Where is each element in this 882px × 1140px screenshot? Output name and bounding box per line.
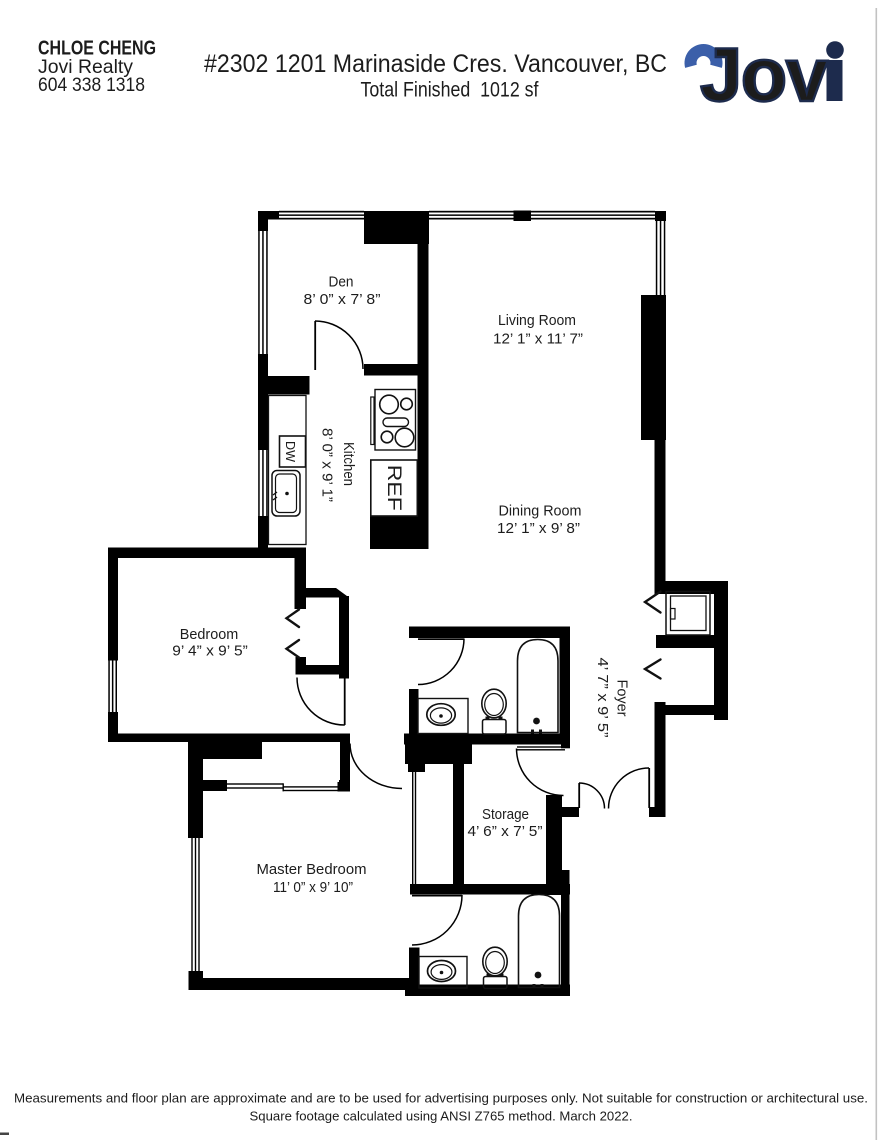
svg-text:Dining Room: Dining Room [499, 503, 582, 520]
svg-text:Bedroom: Bedroom [180, 626, 239, 643]
svg-text:Living Room: Living Room [498, 312, 576, 329]
svg-text:Measurements and floor plan ar: Measurements and floor plan are approxim… [14, 1091, 868, 1106]
svg-text:8’ 0” x 7’ 8”: 8’ 0” x 7’ 8” [304, 291, 381, 308]
svg-text:Kitchen: Kitchen [340, 442, 357, 486]
svg-text:11’ 0” x 9’ 10”: 11’ 0” x 9’ 10” [273, 879, 353, 896]
svg-text:8’ 0” x 9’ 1”: 8’ 0” x 9’ 1” [319, 428, 336, 502]
svg-text:Master Bedroom: Master Bedroom [257, 861, 367, 878]
svg-text:4’ 7” x 9’ 5”: 4’ 7” x 9’ 5” [594, 658, 611, 738]
svg-text:DW: DW [283, 441, 297, 462]
svg-text:604 338 1318: 604 338 1318 [38, 75, 145, 96]
svg-text:Square footage calculated usin: Square footage calculated using ANSI Z76… [250, 1109, 633, 1124]
svg-text:9’ 4” x 9’ 5”: 9’ 4” x 9’ 5” [172, 643, 248, 660]
svg-text:Total Finished 1012 sf: Total Finished 1012 sf [361, 79, 539, 102]
svg-text:Den: Den [329, 274, 354, 291]
svg-text:12’ 1” x 11’ 7”: 12’ 1” x 11’ 7” [493, 331, 583, 348]
svg-text:#2302 1201 Marinaside Cres. Va: #2302 1201 Marinaside Cres. Vancouver, B… [204, 50, 667, 78]
svg-text:4’ 6” x 7’ 5”: 4’ 6” x 7’ 5” [468, 823, 543, 840]
svg-text:12’ 1” x 9’ 8”: 12’ 1” x 9’ 8” [497, 520, 580, 537]
svg-text:REF: REF [383, 465, 405, 511]
svg-text:Jov: Jov [700, 33, 828, 118]
svg-text:Foyer: Foyer [614, 680, 631, 717]
svg-text:Storage: Storage [482, 806, 529, 823]
